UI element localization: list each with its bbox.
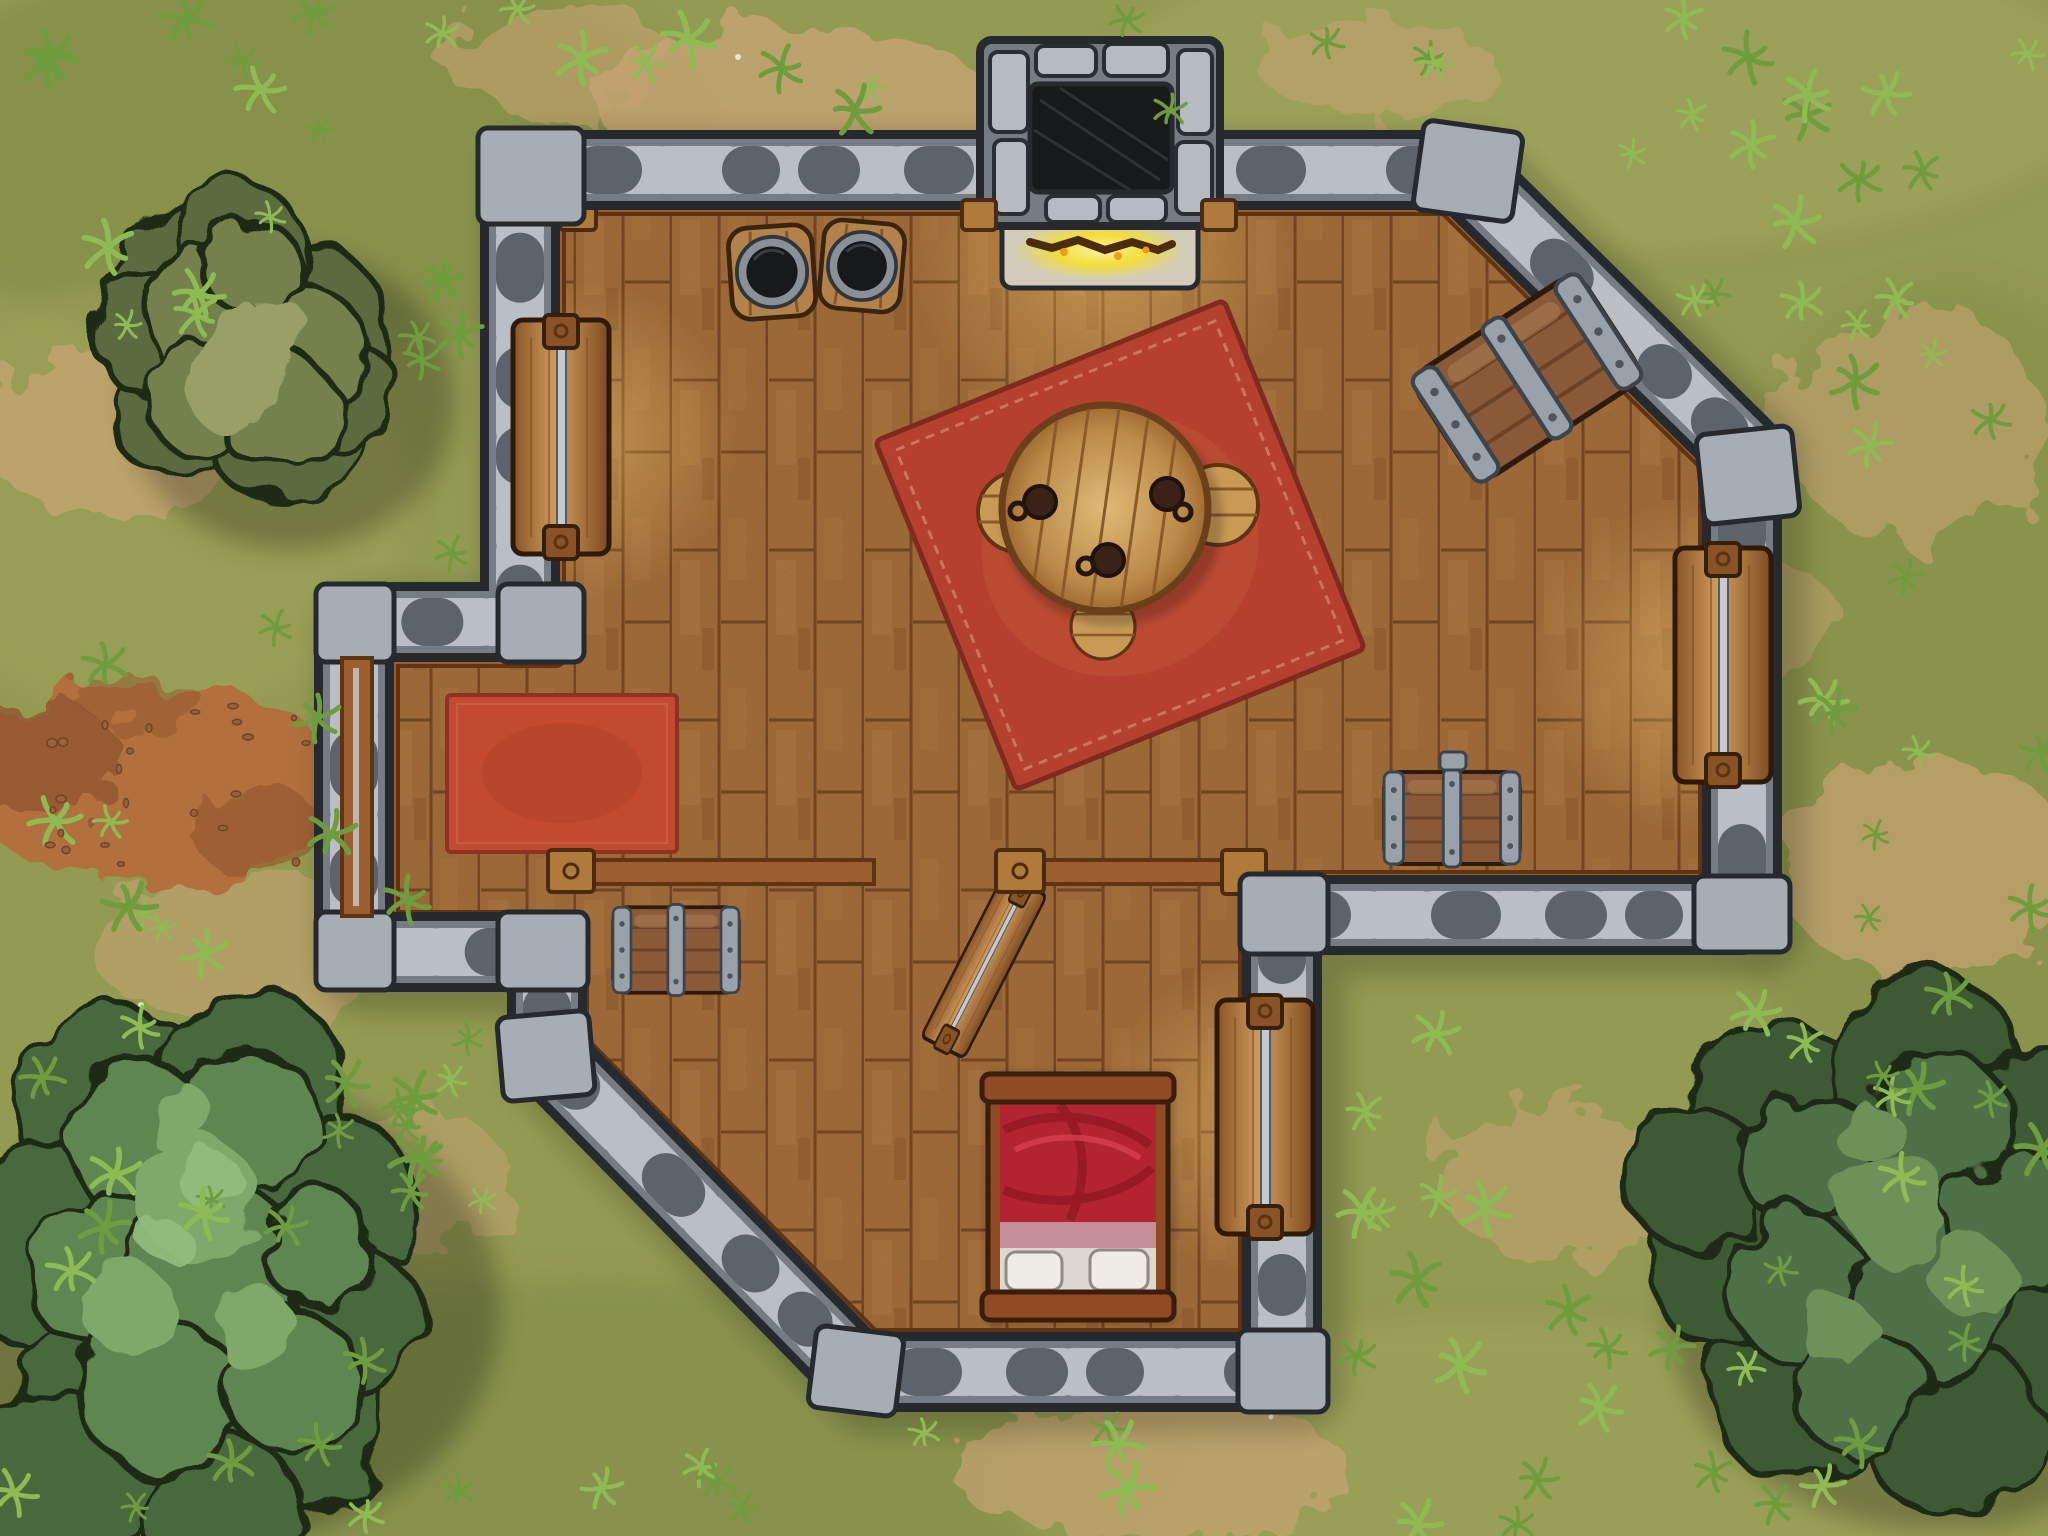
pebble	[102, 721, 107, 730]
pebble	[232, 719, 241, 724]
pebble	[58, 738, 68, 746]
barrel-east-cap	[1440, 752, 1466, 770]
bed-pillow-right	[1090, 1250, 1148, 1290]
bed-pillow-left	[1006, 1252, 1062, 1290]
pebble	[127, 748, 134, 754]
pebble	[101, 843, 109, 848]
pebble	[45, 842, 55, 847]
beam-post	[996, 850, 1044, 892]
pebble	[292, 858, 299, 866]
window-east	[1675, 543, 1771, 787]
pebble	[124, 799, 129, 808]
barrel-east	[1384, 769, 1520, 867]
pebble	[118, 862, 125, 867]
pebble	[56, 795, 66, 802]
pebble	[231, 791, 241, 797]
annex-rug	[447, 695, 677, 852]
cauldron-2	[818, 218, 906, 313]
pebble	[62, 846, 70, 853]
pebble	[228, 703, 238, 708]
pebble	[190, 710, 199, 714]
pebble	[302, 741, 310, 746]
pebble	[146, 724, 152, 733]
bed	[982, 1072, 1176, 1324]
bed-footboard	[982, 1074, 1174, 1102]
pebble	[50, 807, 56, 814]
chimney-flue	[1030, 84, 1172, 192]
pebble	[47, 739, 57, 748]
pebble	[292, 715, 297, 720]
pebble	[116, 765, 121, 774]
window-bedroom-east	[1217, 995, 1313, 1239]
pebble	[243, 734, 254, 740]
battle-map	[0, 0, 2048, 1536]
window-west	[513, 315, 609, 559]
pebble	[58, 829, 63, 837]
fireplace	[962, 40, 1236, 288]
bed-folded-band	[1000, 1222, 1156, 1248]
annex-timber-frame	[342, 658, 372, 916]
cauldron-1	[727, 224, 817, 321]
barrel-annex	[613, 904, 739, 995]
pebble	[219, 825, 228, 830]
beam-post	[548, 850, 594, 892]
pebble	[191, 810, 198, 817]
bed-headboard	[982, 1292, 1174, 1320]
